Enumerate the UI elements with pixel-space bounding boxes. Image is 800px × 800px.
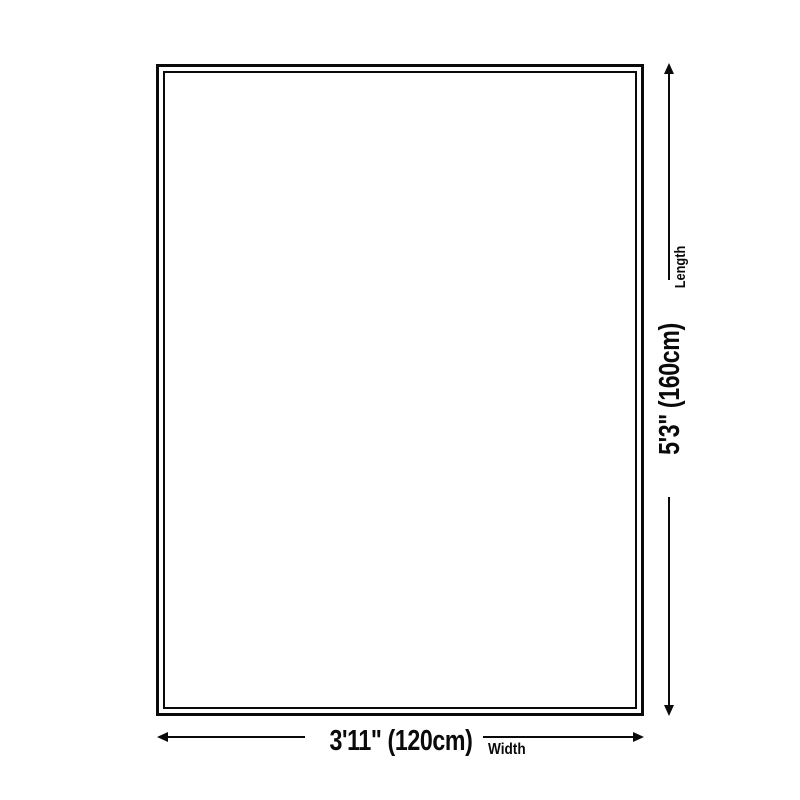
width-value-label: 3'11" (120cm) (281, 724, 521, 758)
rug-outline (156, 64, 644, 716)
size-diagram: Length 5'3" (160cm) 3'11" (120cm) Width (0, 0, 800, 800)
arrow-right-icon (633, 732, 644, 742)
length-dimension-line-top (668, 70, 670, 280)
length-dimension-line-bottom (668, 497, 670, 708)
width-dimension-line-right (483, 736, 636, 738)
rug-inner-outline (163, 71, 637, 709)
length-value-label: 5'3" (160cm) (652, 269, 688, 509)
arrow-down-icon (664, 705, 674, 716)
width-axis-label: Width (488, 741, 526, 759)
